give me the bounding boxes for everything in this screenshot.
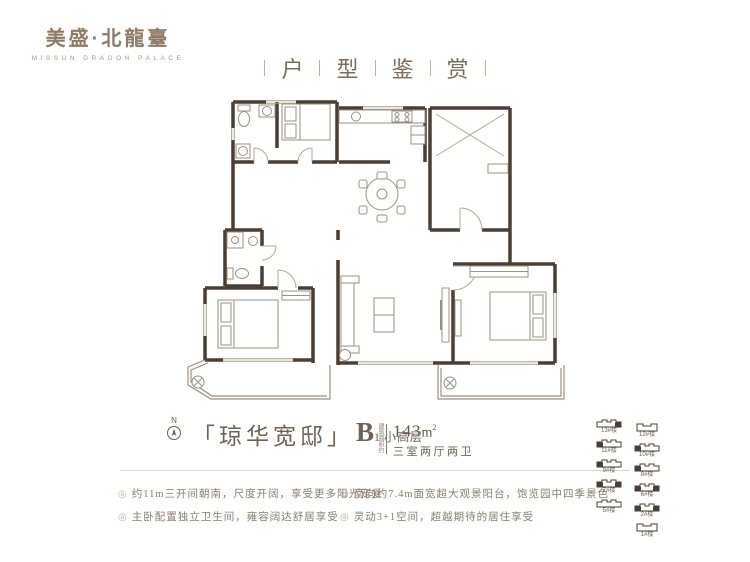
- keyplan-building: 10#楼: [630, 443, 664, 463]
- bullet-icon: ◎: [118, 489, 128, 500]
- keyplan-left-column: 13#楼 11#楼 9#楼 7#楼 5#楼: [592, 419, 626, 519]
- title-divider: [485, 60, 486, 76]
- north-label: N: [163, 417, 185, 425]
- keyplan-building: 9#楼: [592, 459, 626, 479]
- building-icon: [634, 483, 660, 492]
- feature-item: ◎主卧配置独立卫生间，雍容阔达舒居享受: [118, 509, 339, 524]
- keyplan-building: 2#楼: [630, 503, 664, 523]
- building-icon: [596, 499, 622, 508]
- north-compass: N: [163, 417, 185, 446]
- title-divider: [430, 60, 431, 76]
- page-title: 户 型 鉴 赏: [0, 52, 750, 84]
- bullet-icon: ◎: [340, 512, 350, 523]
- feature-item: ◎灵动3+1空间，超越期待的居住享受: [340, 509, 534, 524]
- building-icon: [636, 423, 658, 432]
- bullet-icon: ◎: [118, 512, 128, 523]
- area-label: 建筑面积约: [376, 423, 383, 455]
- unit-name: 「琼华宽邸」: [192, 422, 354, 452]
- balcony-right: [438, 365, 564, 399]
- area-value: 143m2: [393, 419, 474, 441]
- building-icon: [636, 523, 658, 532]
- building-icon: [596, 459, 622, 468]
- keyplan-building: 13#楼: [592, 419, 626, 439]
- title-char: 鉴: [392, 52, 414, 84]
- feature-item: ◎南向约7.4m面宽超大观景阳台，饱览园中四季景色: [340, 486, 609, 501]
- keyplan-building: 11#楼: [592, 439, 626, 459]
- furniture: [192, 104, 546, 389]
- title-char: 型: [336, 52, 358, 84]
- keyplan-building: 1#楼: [630, 523, 664, 543]
- keyplan-building: 8#楼: [630, 463, 664, 483]
- balcony-left: [188, 360, 330, 399]
- keyplan-right-column: 12#楼 10#楼 8#楼 6#楼 2#楼 1#楼: [630, 423, 664, 543]
- building-icon: [596, 479, 622, 488]
- title-char: 户: [281, 52, 303, 84]
- area-divider: [386, 424, 387, 454]
- area-info: 建筑面积约 143m2 三室两厅两卫: [376, 419, 474, 459]
- building-icon: [596, 419, 622, 428]
- building-icon: [634, 503, 660, 512]
- floorplan-drawing: [178, 88, 573, 410]
- keyplan-building: 12#楼: [630, 423, 664, 443]
- bullet-icon: ◎: [340, 489, 350, 500]
- brand-name: 美盛·北龍臺: [28, 22, 188, 51]
- building-icon: [634, 443, 660, 452]
- keyplan-building: 5#楼: [592, 499, 626, 519]
- title-divider: [264, 60, 265, 76]
- keyplan-building: 7#楼: [592, 479, 626, 499]
- keyplan-building: 6#楼: [630, 483, 664, 503]
- north-arrow-icon: [166, 425, 182, 441]
- horizontal-divider: [120, 470, 630, 471]
- void-hatch: [436, 114, 504, 156]
- building-icon: [596, 439, 622, 448]
- title-divider: [319, 60, 320, 76]
- unit-type-letter: B: [356, 417, 374, 447]
- title-char: 赏: [447, 52, 469, 84]
- title-divider: [375, 60, 376, 76]
- building-icon: [634, 463, 660, 472]
- door-arcs: [254, 148, 482, 290]
- room-layout: 三室两厅两卫: [393, 443, 474, 459]
- brochure-page: 美盛·北龍臺 MISSUN DRAGON PALACE 户 型 鉴 赏: [0, 0, 750, 562]
